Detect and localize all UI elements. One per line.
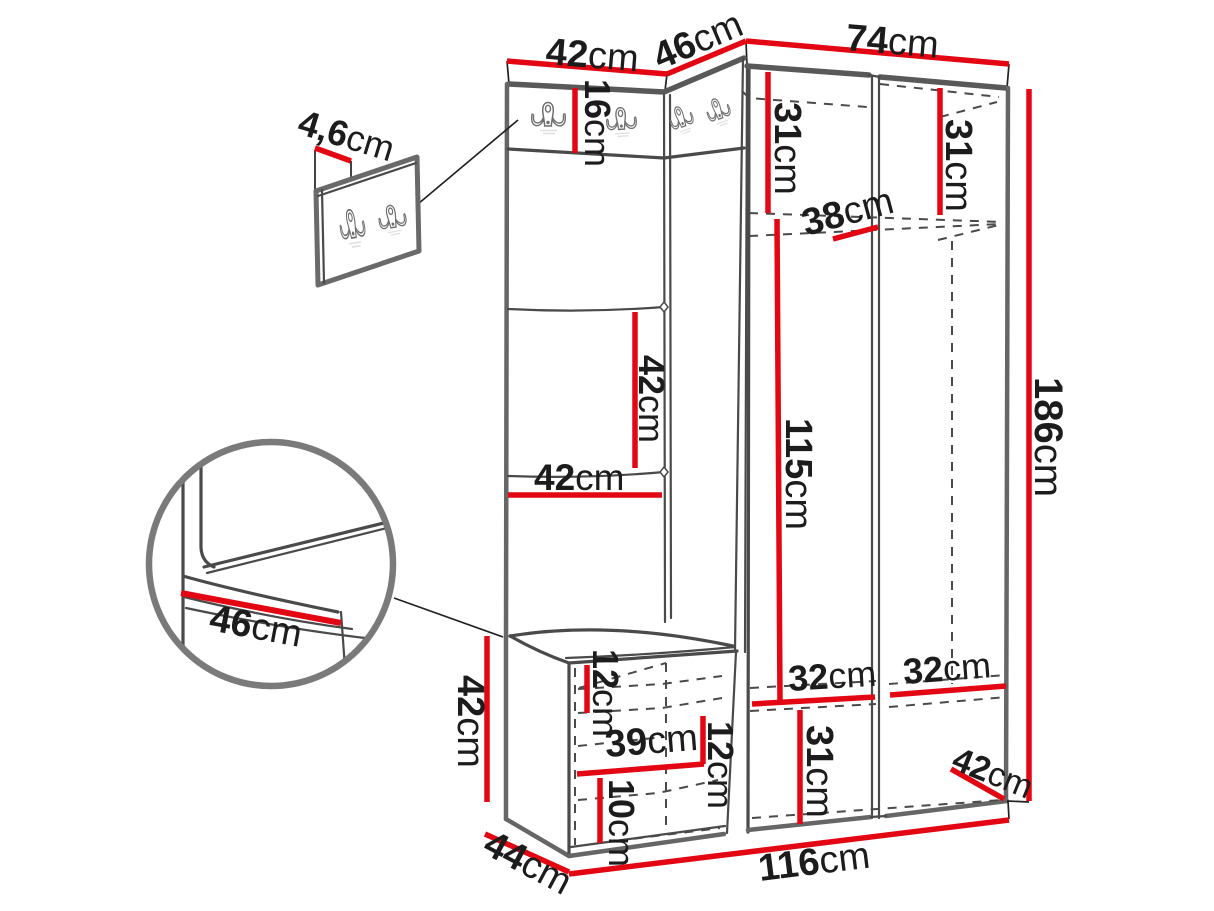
svg-text:31cm: 31cm xyxy=(766,102,808,195)
svg-text:42cm: 42cm xyxy=(631,355,672,443)
svg-text:186cm: 186cm xyxy=(1026,377,1070,497)
svg-text:10cm: 10cm xyxy=(601,779,642,867)
svg-text:12cm: 12cm xyxy=(700,721,741,809)
svg-text:115cm: 115cm xyxy=(777,418,819,530)
svg-text:16cm: 16cm xyxy=(577,79,618,167)
svg-text:42cm: 42cm xyxy=(534,457,624,498)
svg-text:42cm: 42cm xyxy=(544,31,640,80)
svg-text:32cm: 32cm xyxy=(901,644,992,692)
svg-text:39cm: 39cm xyxy=(603,717,699,766)
svg-text:31cm: 31cm xyxy=(798,725,840,818)
svg-text:31cm: 31cm xyxy=(937,119,979,212)
svg-text:42cm: 42cm xyxy=(449,675,491,768)
svg-text:74cm: 74cm xyxy=(844,17,940,67)
svg-text:32cm: 32cm xyxy=(787,653,877,699)
